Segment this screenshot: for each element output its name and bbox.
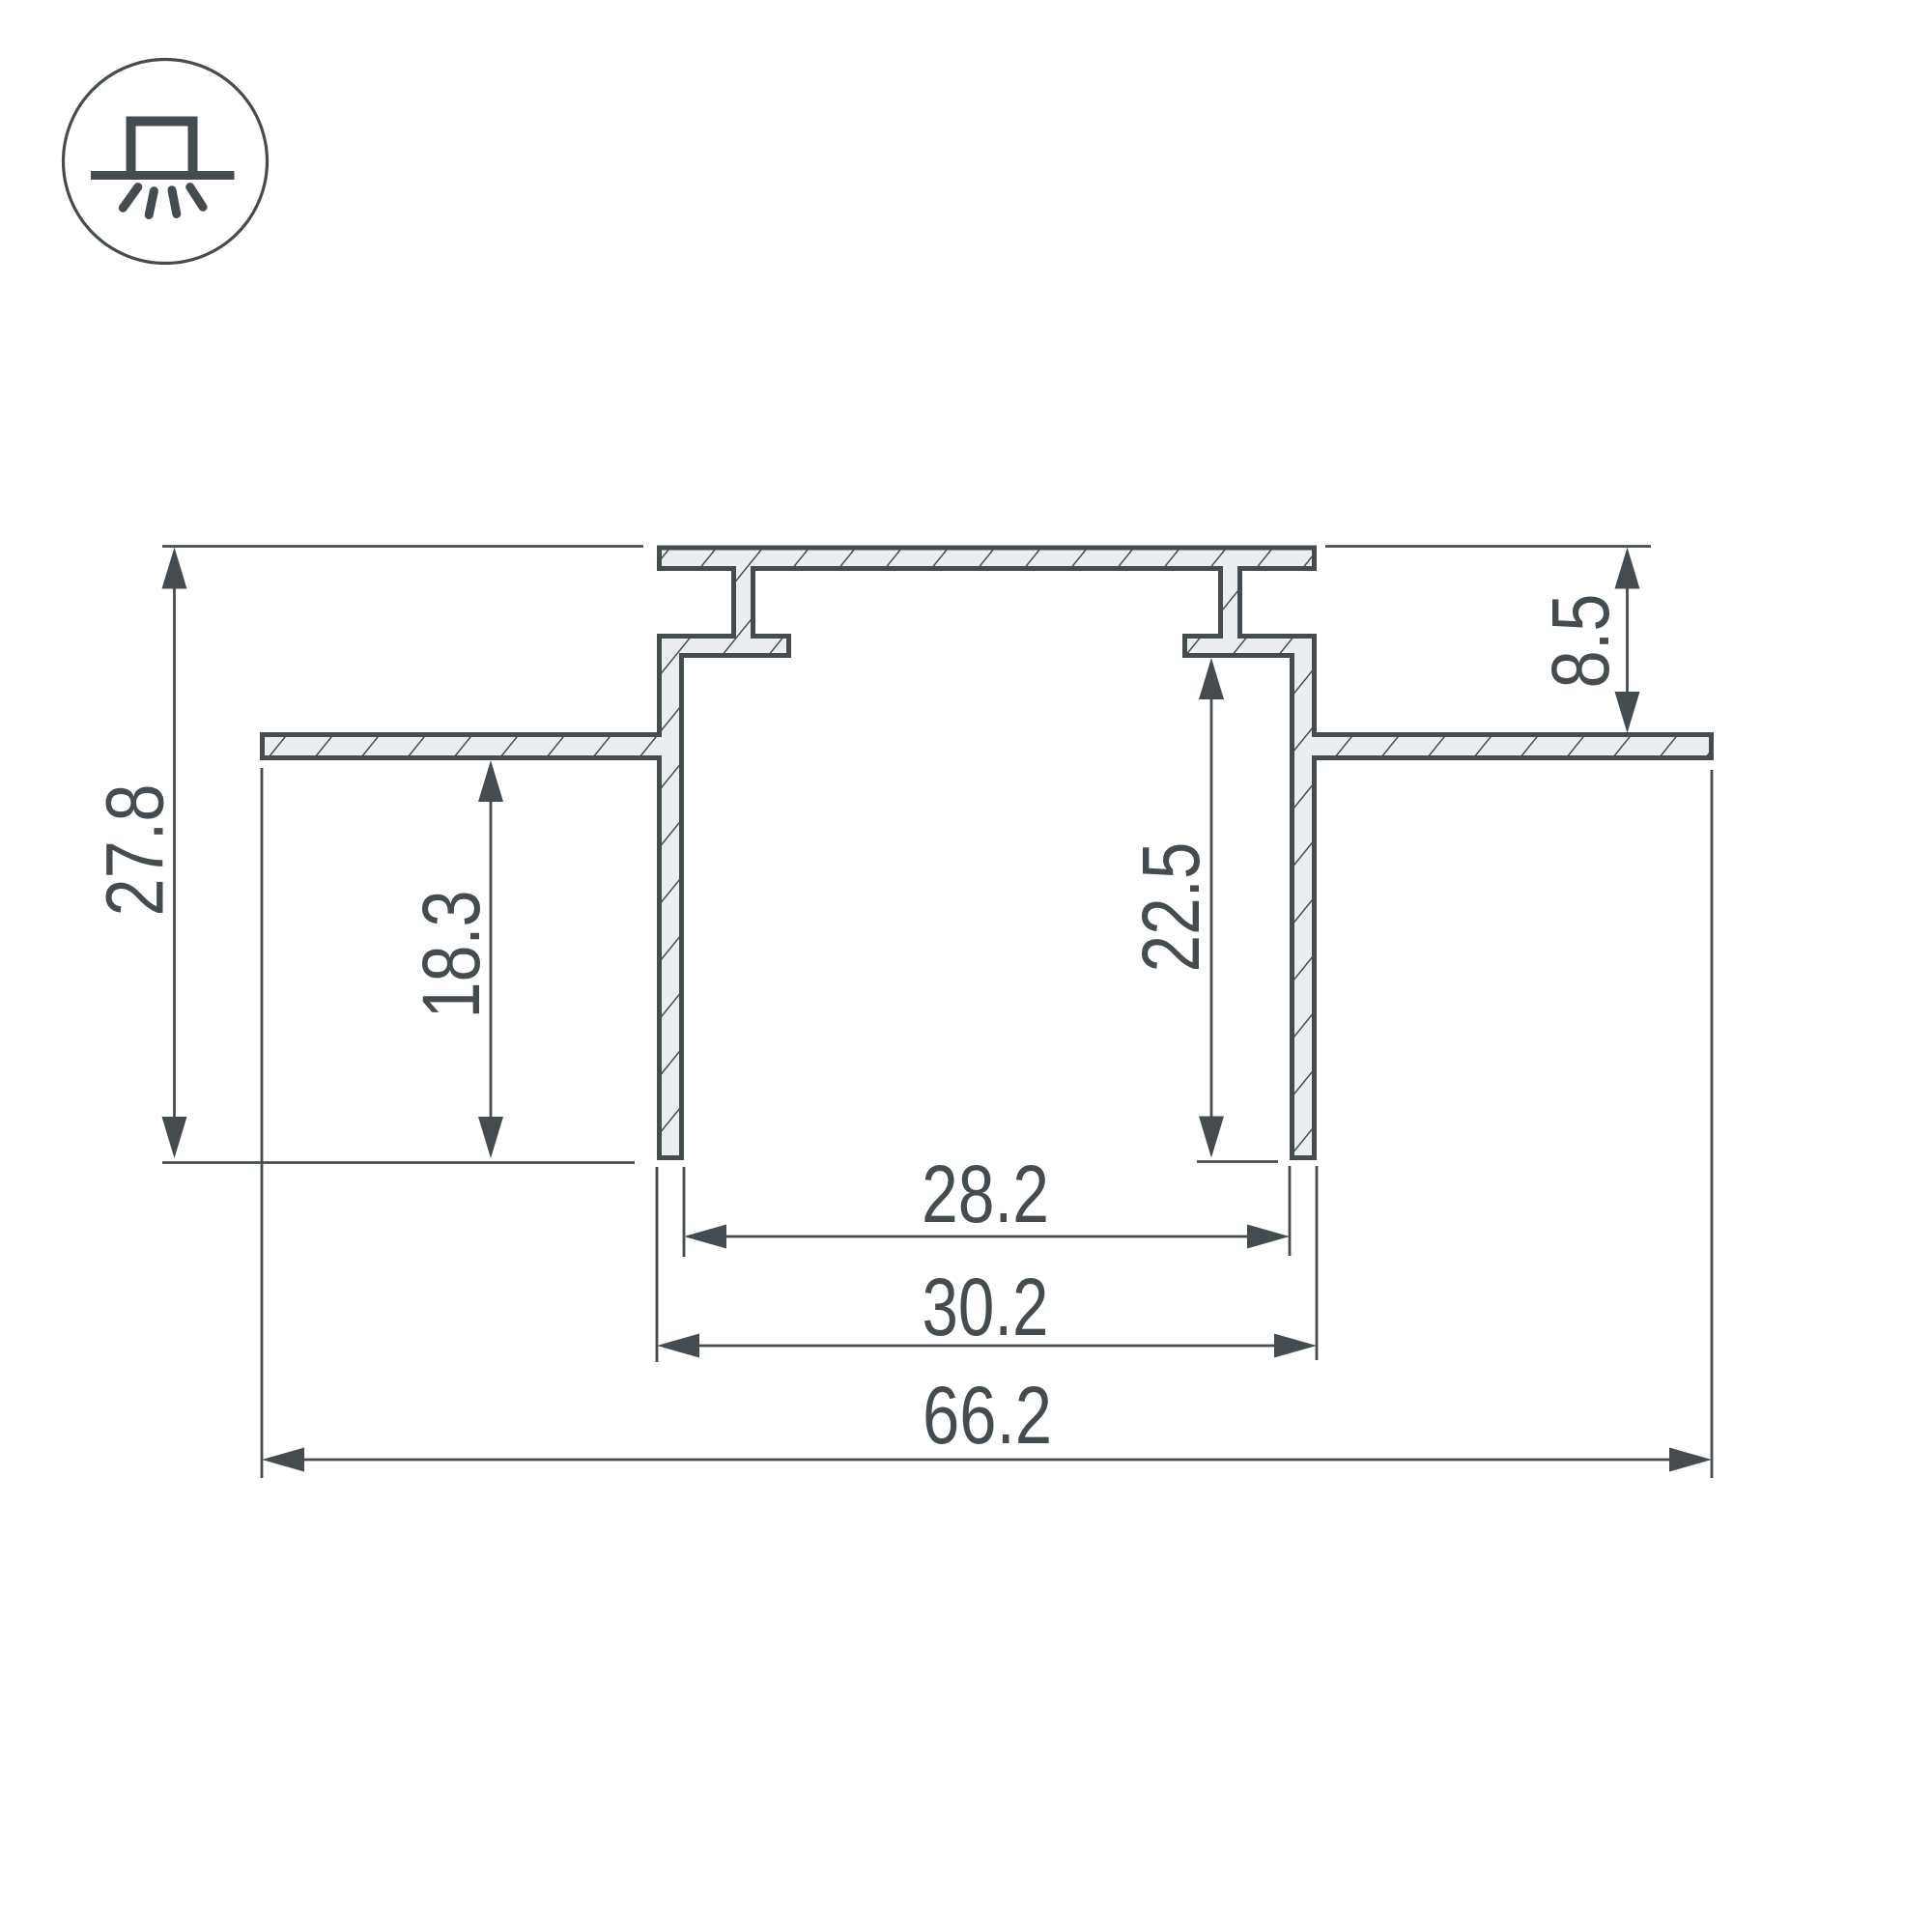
- svg-text:22.5: 22.5: [1125, 842, 1216, 973]
- svg-text:30.2: 30.2: [923, 1262, 1049, 1352]
- svg-text:28.2: 28.2: [922, 1149, 1049, 1239]
- svg-text:8.5: 8.5: [1535, 594, 1626, 689]
- svg-text:66.2: 66.2: [923, 1370, 1052, 1461]
- svg-text:27.8: 27.8: [90, 784, 181, 917]
- svg-text:18.3: 18.3: [406, 891, 497, 1019]
